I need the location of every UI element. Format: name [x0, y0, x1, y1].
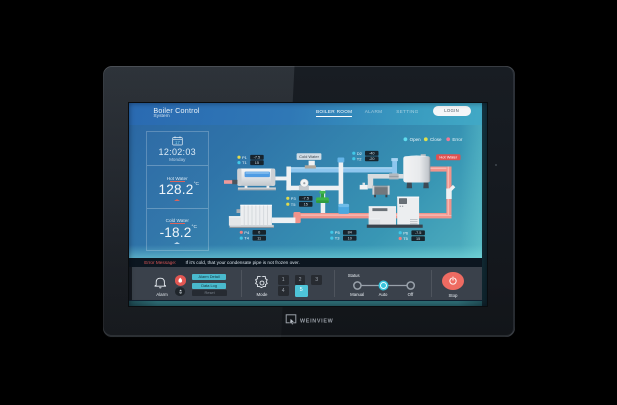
- svg-text:WEINVIEW: WEINVIEW: [300, 318, 334, 324]
